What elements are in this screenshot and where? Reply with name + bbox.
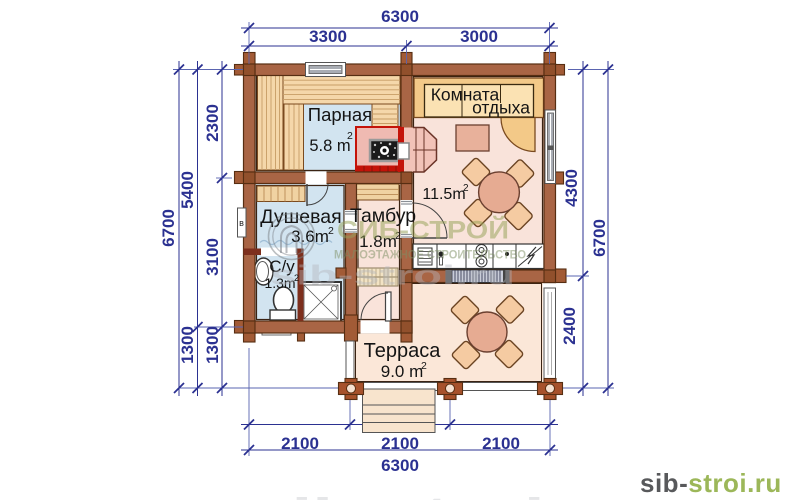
svg-text:5.8 m: 5.8 m [309,137,350,155]
svg-text:3100: 3100 [203,238,222,276]
svg-text:отдыха: отдыха [472,98,530,118]
svg-text:1300: 1300 [203,326,222,364]
svg-text:6300: 6300 [381,456,419,475]
svg-text:СИБ-СТРОЙ: СИБ-СТРОЙ [337,215,509,245]
svg-text:2100: 2100 [281,434,319,453]
svg-text:6700: 6700 [159,209,178,247]
svg-text:5400: 5400 [178,171,197,209]
svg-text:sib-stroi.ru: sib-stroi.ru [640,468,782,498]
svg-text:sib-stroi.ru: sib-stroi.ru [250,492,640,500]
svg-text:Терраса: Терраса [364,340,442,362]
svg-text:6700: 6700 [590,219,609,257]
svg-text:4300: 4300 [562,169,581,207]
svg-text:Парная: Парная [308,104,372,125]
svg-text:11.5m: 11.5m [422,186,465,203]
svg-text:1300: 1300 [178,326,197,364]
svg-text:9.0 m: 9.0 m [381,362,424,381]
svg-text:2: 2 [328,225,334,237]
svg-text:3300: 3300 [309,27,347,46]
svg-text:в: в [239,218,244,228]
svg-text:2100: 2100 [381,434,419,453]
svg-text:3000: 3000 [460,27,498,46]
svg-text:2: 2 [463,183,469,194]
svg-text:2: 2 [347,130,353,142]
svg-text:2400: 2400 [560,307,579,345]
svg-text:2100: 2100 [482,434,520,453]
svg-text:2: 2 [421,360,427,372]
svg-text:6300: 6300 [381,7,419,26]
svg-text:sib-stroi.ru: sib-stroi.ru [270,260,515,291]
svg-text:2300: 2300 [203,104,222,142]
